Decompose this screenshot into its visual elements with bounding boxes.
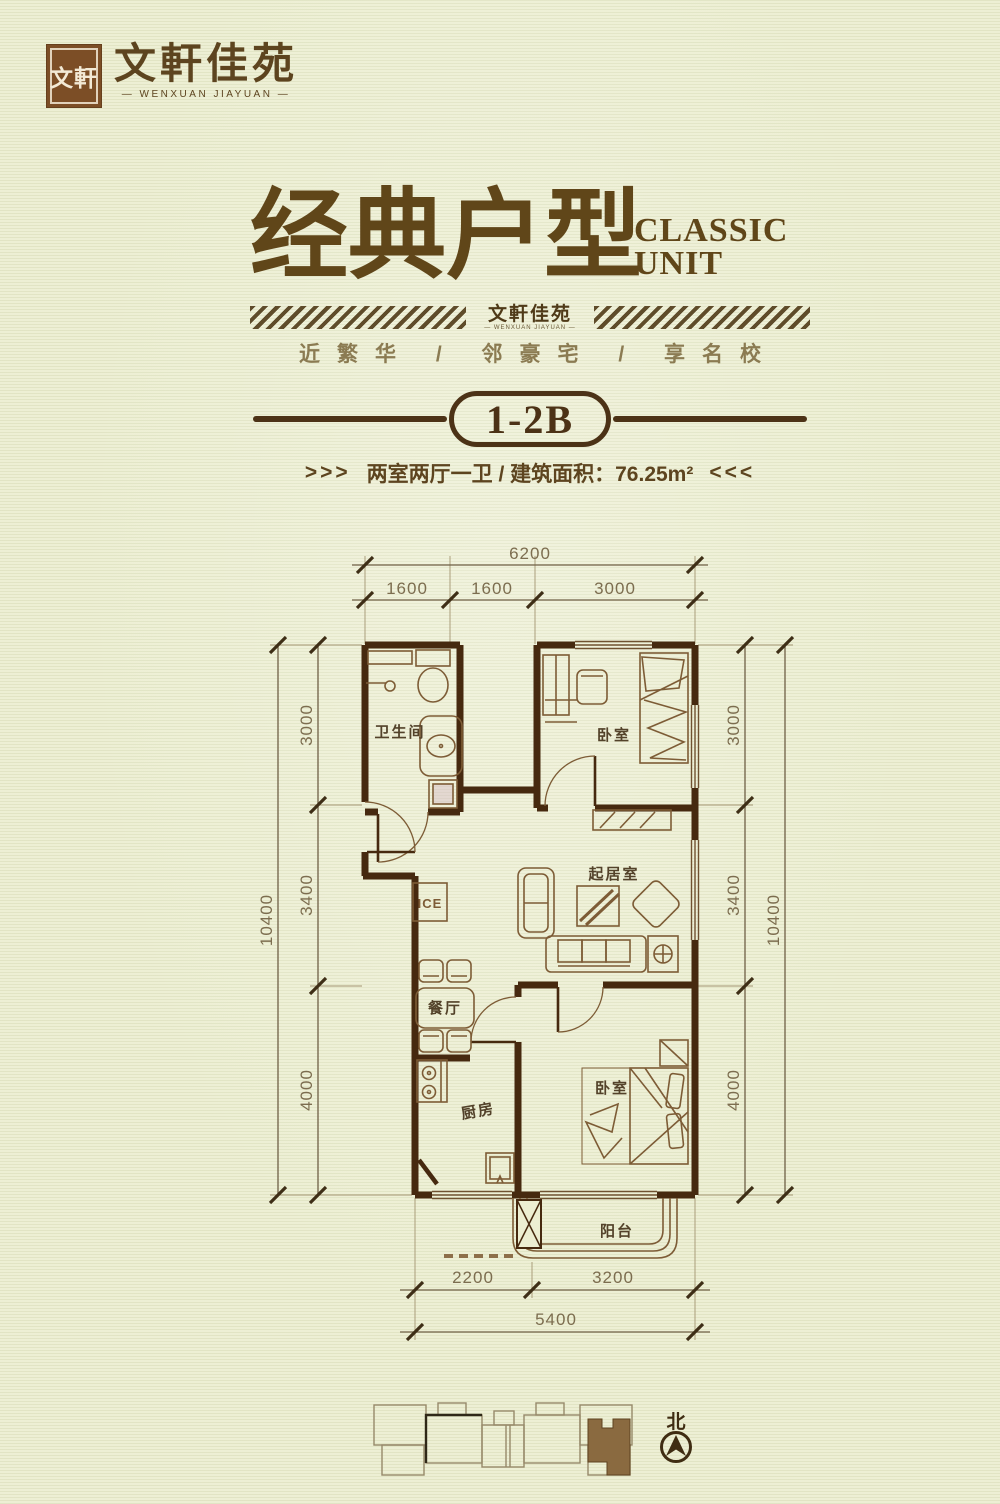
dim-top-total: 6200 — [509, 544, 551, 563]
brand-name-en: — WENXUAN JIAYUAN — — [114, 89, 298, 100]
tv-cabinet — [593, 810, 671, 830]
title-divider-band: 文軒佳苑 — WENXUAN JIAYUAN — — [250, 306, 810, 329]
room-label-bedroom1: 卧室 — [597, 726, 631, 744]
room-label-living: 起居室 — [587, 865, 639, 883]
bedroom1 — [543, 653, 688, 763]
dim-right-seg2: 3400 — [724, 874, 743, 916]
north-indicator: 北 — [662, 1411, 691, 1462]
building-key-plan: 北 — [345, 1384, 705, 1502]
tagline: 近繁华 / 邻豪宅 / 享名校 — [250, 338, 810, 368]
bedroom2 — [582, 1040, 688, 1164]
spec-text: 两室两厅一卫 / 建筑面积：76.25m² — [367, 458, 694, 488]
doors — [365, 756, 603, 1042]
spec-line: >>> 两室两厅一卫 / 建筑面积：76.25m² <<< — [250, 458, 810, 488]
badge-rule-right — [613, 416, 807, 422]
room-label-balcony: 阳台 — [600, 1222, 634, 1240]
room-label-dining: 餐厅 — [428, 999, 462, 1017]
brand-logo: 文軒 文軒佳苑 — WENXUAN JIAYUAN — — [46, 44, 298, 108]
band-logo-name: 文軒佳苑 — [466, 305, 594, 324]
footprint-highlight-edge — [426, 1415, 482, 1463]
bed-single — [640, 653, 688, 763]
balcony — [444, 1198, 677, 1258]
dim-top-seg3: 3000 — [594, 579, 636, 598]
desk-chair — [577, 670, 607, 704]
dim-right-seg1: 3000 — [724, 704, 743, 746]
dim-right-seg3: 4000 — [724, 1069, 743, 1111]
brand-name: 文軒佳苑 — [114, 44, 298, 86]
dim-top-seg1: 1600 — [386, 579, 428, 598]
dim-bottom-seg2: 3200 — [592, 1268, 634, 1287]
room-label-bedroom2: 卧室 — [595, 1079, 629, 1097]
north-label: 北 — [666, 1411, 685, 1433]
unit-code-badge: 1-2B — [449, 391, 611, 447]
band-logo: 文軒佳苑 — WENXUAN JIAYUAN — — [466, 305, 594, 331]
this-unit-marker — [588, 1419, 630, 1475]
room-label-kitchen: 厨房 — [460, 1099, 497, 1123]
bed-double — [630, 1068, 688, 1164]
corner-chair — [631, 879, 682, 930]
band-logo-name-en: — WENXUAN JIAYUAN — — [466, 325, 594, 331]
floor-plan: 6200 1600 1600 3000 10400 3000 3400 4000… — [245, 520, 815, 1370]
dim-right-total: 10400 — [764, 894, 783, 946]
dim-left-seg3: 4000 — [297, 1069, 316, 1111]
brand-text: 文軒佳苑 — WENXUAN JIAYUAN — — [114, 44, 298, 100]
page-title-en-line2: UNIT — [634, 247, 788, 280]
page-title-en-line1: CLASSIC — [634, 214, 788, 247]
brand-seal-icon: 文軒 — [46, 44, 102, 108]
badge-rule-left — [253, 416, 447, 422]
fridge-label: ICE — [418, 896, 443, 911]
toilet-bowl — [418, 668, 448, 702]
unit-badge-row: 1-2B — [253, 390, 807, 448]
hatch-stripe-right — [594, 306, 810, 329]
room-label-bathroom: 卫生间 — [374, 723, 425, 741]
dim-bottom-total: 5400 — [535, 1310, 577, 1329]
poster: 文軒 文軒佳苑 — WENXUAN JIAYUAN — 经典户型 CLASSIC… — [0, 0, 1000, 1504]
stove — [417, 1060, 447, 1102]
living-room — [413, 810, 681, 972]
north-arrow-icon — [666, 1435, 686, 1456]
dim-left-seg2: 3400 — [297, 874, 316, 916]
dim-top-seg2: 1600 — [471, 579, 513, 598]
spec-arrows-left: >>> — [305, 461, 351, 485]
hatch-stripe-left — [250, 306, 466, 329]
spec-arrows-right: <<< — [709, 461, 755, 485]
toilet-tank — [416, 650, 450, 666]
brand-seal-text: 文軒 — [50, 59, 98, 93]
dim-left-total: 10400 — [257, 894, 276, 946]
dim-left-seg1: 3000 — [297, 704, 316, 746]
page-title-en: CLASSIC UNIT — [634, 214, 788, 281]
page-title: 经典户型 — [250, 186, 642, 286]
dim-bottom-seg1: 2200 — [452, 1268, 494, 1287]
